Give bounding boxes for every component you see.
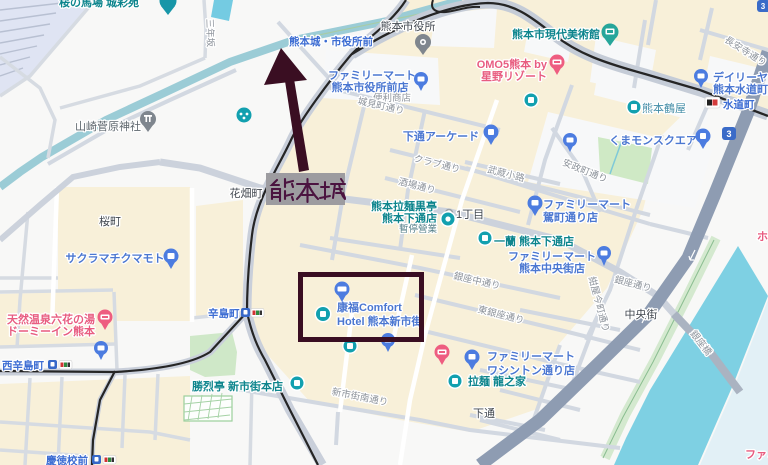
svg-text:ホテ: ホテ: [757, 230, 768, 243]
svg-text:辛島町: 辛島町: [208, 307, 240, 320]
svg-text:ワシントン通り店: ワシントン通り店: [487, 363, 575, 377]
svg-text:拉麺 龍之家: 拉麺 龍之家: [468, 374, 527, 388]
svg-text:熊本水道町: 熊本水道町: [713, 82, 768, 96]
svg-text:デイリーヤ: デイリーヤ: [713, 70, 768, 84]
svg-text:西辛島町: 西辛島町: [2, 359, 44, 372]
svg-text:花畑町: 花畑町: [230, 187, 263, 200]
svg-text:サクラマチクマモト: サクラマチクマモト: [66, 252, 165, 265]
svg-text:1丁目: 1丁目: [456, 209, 484, 221]
svg-text:桜の馬場 城彩苑: 桜の馬場 城彩苑: [59, 0, 139, 9]
svg-text:3: 3: [761, 2, 766, 11]
svg-text:ファミリ: ファミリ: [745, 448, 768, 461]
svg-text:慶徳校前: 慶徳校前: [46, 454, 88, 465]
svg-text:一蘭 熊本下通店: 一蘭 熊本下通店: [494, 234, 574, 248]
svg-text:ファミリーマート: ファミリーマート: [508, 250, 596, 263]
svg-text:熊本拉麺黒亭: 熊本拉麺黒亭: [371, 199, 437, 213]
svg-text:熊本市役所前店: 熊本市役所前店: [332, 80, 409, 94]
svg-text:勝烈亭 新市街本店: 勝烈亭 新市街本店: [192, 379, 283, 393]
svg-text:OMO5熊本 by: OMO5熊本 by: [477, 57, 548, 71]
svg-text:下通アーケード: 下通アーケード: [403, 130, 479, 143]
svg-text:三年坂: 三年坂: [204, 18, 217, 47]
svg-text:山崎菅原神社: 山崎菅原神社: [75, 119, 141, 133]
svg-text:熊本中央街店: 熊本中央街店: [519, 261, 585, 275]
svg-text:星野リゾート: 星野リゾート: [481, 69, 547, 83]
svg-text:暫停營業: 暫停營業: [399, 223, 438, 235]
svg-text:熊本城・市役所前: 熊本城・市役所前: [289, 35, 373, 48]
svg-text:水道町: 水道町: [722, 98, 755, 111]
svg-text:ドーミーイン熊本: ドーミーイン熊本: [7, 324, 95, 338]
svg-text:下通: 下通: [473, 407, 495, 420]
svg-text:桜町: 桜町: [99, 214, 121, 228]
svg-text:中央街: 中央街: [625, 307, 658, 321]
svg-text:くまモンスクエア: くまモンスクエア: [609, 134, 697, 147]
svg-text:駕町通り店: 駕町通り店: [542, 210, 598, 224]
svg-text:3: 3: [726, 129, 731, 139]
svg-text:Hotel 熊本新市街: Hotel 熊本新市街: [337, 314, 423, 328]
svg-text:熊本市現代美術館: 熊本市現代美術館: [512, 27, 600, 41]
svg-text:ファミリーマート: ファミリーマート: [328, 69, 416, 82]
svg-text:天然温泉六花の湯: 天然温泉六花の湯: [7, 312, 95, 326]
svg-text:ファミリーマート: ファミリーマート: [487, 350, 575, 363]
svg-text:熊本市役所: 熊本市役所: [381, 19, 436, 33]
svg-text:熊本鶴屋: 熊本鶴屋: [642, 101, 686, 115]
svg-text:康福Comfort: 康福Comfort: [337, 300, 402, 314]
svg-text:熊本下通店: 熊本下通店: [382, 211, 437, 225]
svg-text:ファミリーマート: ファミリーマート: [543, 198, 631, 211]
